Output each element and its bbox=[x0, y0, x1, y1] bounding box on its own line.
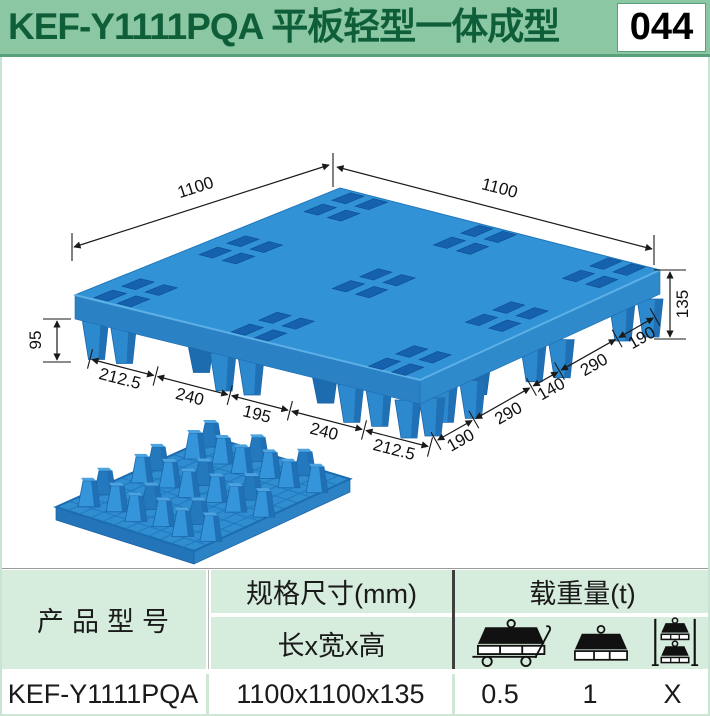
dimension-label: 290 bbox=[491, 398, 525, 429]
technical-drawing: 1100110013595212.5240195240212.519029014… bbox=[0, 57, 710, 565]
product-header: KEF-Y1111PQA 平板轻型一体成型 044 bbox=[0, 0, 710, 57]
model-value: KEF-Y1111PQA bbox=[0, 674, 206, 714]
spec-table: 产品型号 规格尺寸(mm) 长x宽x高 载重量(t) bbox=[0, 568, 710, 716]
dimension-label: 212.5 bbox=[97, 364, 143, 393]
dimensions-value: 1100x1100x135 bbox=[209, 674, 452, 714]
product-title: KEF-Y1111PQA 平板轻型一体成型 bbox=[0, 0, 559, 54]
static-load-value: 1 bbox=[545, 674, 635, 714]
spec-sub-header: 长x宽x高 bbox=[211, 617, 452, 669]
catalog-page: KEF-Y1111PQA 平板轻型一体成型 044 11001100135952… bbox=[0, 0, 710, 716]
dimension-label: 212.5 bbox=[371, 435, 417, 464]
page-number: 044 bbox=[617, 3, 706, 52]
rack-load-icon bbox=[651, 617, 699, 667]
dimension-label: 1100 bbox=[480, 174, 520, 202]
pallet-drawing-canvas: 1100110013595212.5240195240212.519029014… bbox=[0, 57, 710, 565]
dimension-label: 135 bbox=[673, 290, 692, 318]
static-load-icon bbox=[565, 625, 637, 665]
dimension-label: 95 bbox=[26, 331, 45, 350]
load-icons-cell bbox=[455, 617, 710, 669]
dimension-label: 290 bbox=[577, 350, 611, 381]
spec-header: 规格尺寸(mm) bbox=[211, 570, 452, 613]
page-left-border bbox=[0, 57, 2, 716]
product-model-header: 产品型号 bbox=[0, 570, 206, 669]
rack-load-value: X bbox=[635, 674, 710, 714]
dimension-label: 1100 bbox=[175, 173, 216, 202]
dynamic-load-icon bbox=[463, 619, 563, 667]
dimension-label: 190 bbox=[444, 425, 478, 456]
load-capacity-header: 载重量(t) bbox=[455, 570, 710, 613]
dynamic-load-value: 0.5 bbox=[455, 674, 545, 714]
